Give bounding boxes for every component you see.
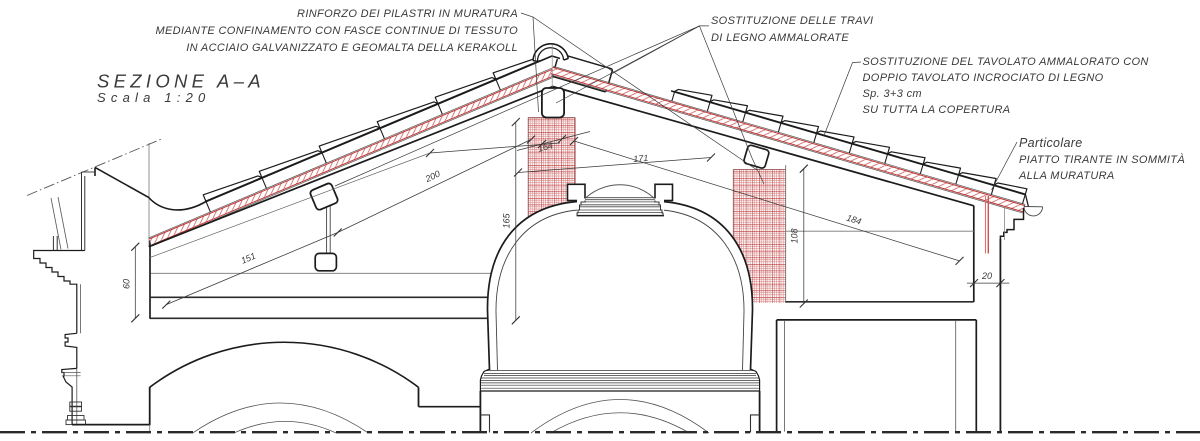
svg-text:20: 20 — [981, 271, 992, 281]
svg-text:SEZIONE A–A: SEZIONE A–A — [97, 71, 265, 92]
svg-text:SOSTITUZIONE DEL TAVOLATO AMMA: SOSTITUZIONE DEL TAVOLATO AMMALORATO CON — [863, 56, 1149, 68]
svg-text:108: 108 — [790, 228, 800, 243]
svg-text:RINFORZO DEI PILASTRI IN MURAT: RINFORZO DEI PILASTRI IN MURATURA — [297, 8, 518, 20]
svg-text:MEDIANTE CONFINAMENTO CON FASC: MEDIANTE CONFINAMENTO CON FASCE CONTINUE… — [155, 25, 518, 37]
svg-text:DOPPIO TAVOLATO INCROCIATO DI: DOPPIO TAVOLATO INCROCIATO DI LEGNO — [863, 72, 1104, 84]
svg-text:Sp. 3+3 cm: Sp. 3+3 cm — [863, 88, 922, 100]
svg-text:171: 171 — [633, 153, 649, 164]
svg-text:PIATTO TIRANTE IN SOMMITÀ: PIATTO TIRANTE IN SOMMITÀ — [1019, 153, 1185, 166]
svg-text:ALLA MURATURA: ALLA MURATURA — [1018, 170, 1115, 182]
svg-text:60: 60 — [122, 279, 132, 289]
svg-text:Particolare: Particolare — [1019, 136, 1083, 150]
svg-text:DI LEGNO AMMALORATE: DI LEGNO AMMALORATE — [711, 32, 849, 44]
svg-text:SOSTITUZIONE DELLE TRAVI: SOSTITUZIONE DELLE TRAVI — [711, 15, 873, 27]
svg-text:Scala 1:20: Scala 1:20 — [97, 90, 210, 105]
svg-text:SU TUTTA LA COPERTURA: SU TUTTA LA COPERTURA — [863, 104, 1011, 116]
svg-text:165: 165 — [502, 213, 512, 229]
svg-text:IN ACCIAIO GALVANIZZATO E GEOM: IN ACCIAIO GALVANIZZATO E GEOMALTA DELLA… — [186, 42, 518, 54]
